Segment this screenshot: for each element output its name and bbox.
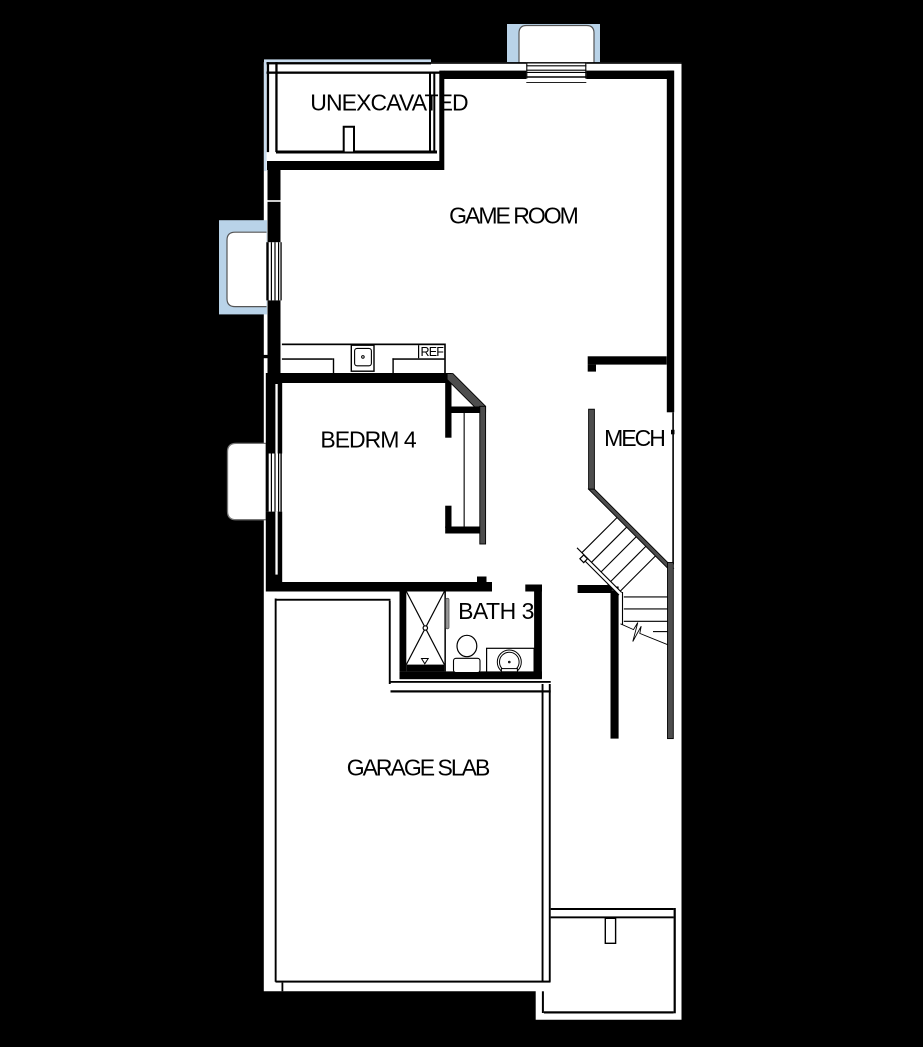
svg-text:GAME ROOM: GAME ROOM <box>449 203 578 229</box>
svg-text:UNEXCAVATED: UNEXCAVATED <box>310 90 468 116</box>
svg-text:REF: REF <box>421 345 445 359</box>
svg-text:MECH: MECH <box>604 425 664 451</box>
svg-text:BEDRM 4: BEDRM 4 <box>320 427 416 453</box>
svg-text:GARAGE SLAB: GARAGE SLAB <box>347 755 490 781</box>
svg-text:BATH 3: BATH 3 <box>458 598 534 624</box>
